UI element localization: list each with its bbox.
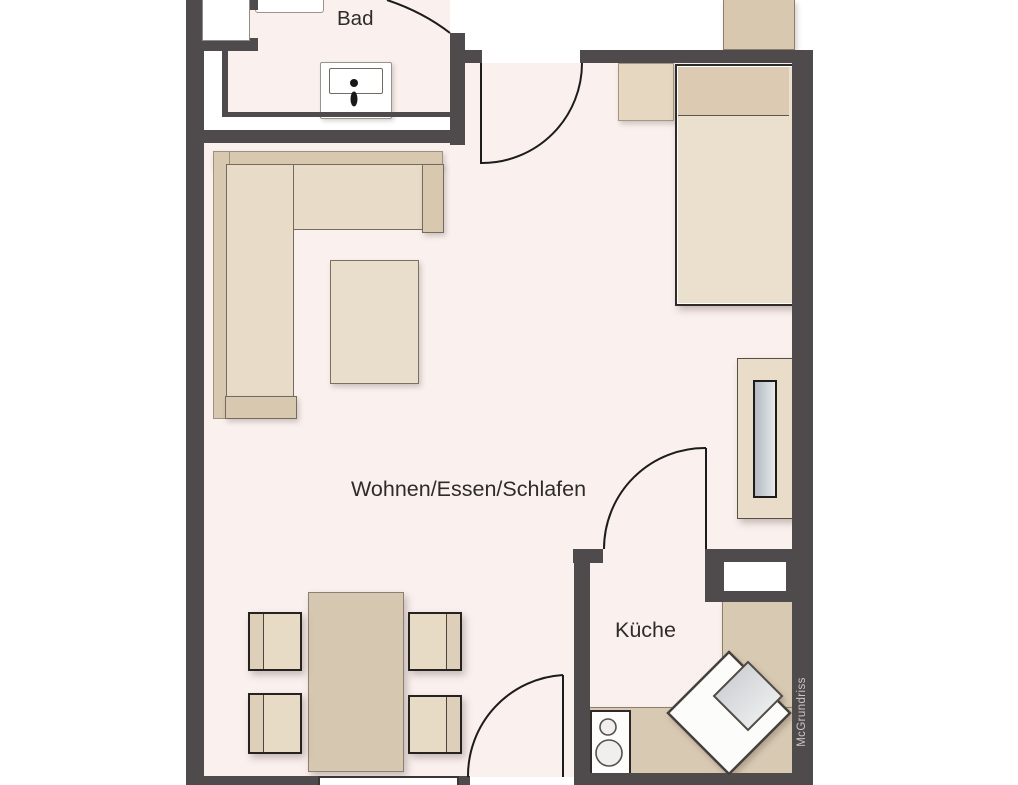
sofa-armrest-right [422,164,444,233]
bed [675,64,796,306]
stove [590,710,631,777]
toilet-cutoff [255,0,324,13]
wall-stub-entry [463,50,482,63]
wall-band-below-bath [186,130,463,143]
wardrobe [737,358,794,519]
bathroom-label: Bad [337,7,373,31]
shaft-channel-vertical [204,49,222,131]
wall-bottom-pier [459,776,470,785]
sofa-seat-left [226,164,294,399]
coffee-table [330,260,419,384]
bathroom-window-opening [202,0,250,41]
bed-pillow [678,67,789,116]
nightstand [618,63,674,121]
chair-backrest [446,614,460,669]
dining-chair [408,612,462,671]
chair-backrest [446,697,460,752]
wall-bottom-left [186,776,318,785]
wall-top [580,50,813,63]
wall-exterior-left [186,0,204,785]
bottom-window [318,776,459,785]
chair-backrest [250,695,264,752]
dining-table [308,592,404,772]
sofa-armrest-bottom [225,396,297,419]
dining-chair [408,695,462,754]
wall-bath-left-thin [222,49,228,117]
washbasin [320,62,392,119]
wall-kitchen-bottom [574,773,812,785]
chair-backrest [250,614,264,669]
wall-kitchen-left [574,549,590,777]
washbasin-bowl [329,68,383,94]
living-room-label: Wohnen/Essen/Schlafen [351,477,586,502]
hallway-cabinet [723,0,795,50]
watermark: McGrundriss [796,652,808,772]
kitchen-label: Küche [615,618,676,643]
dining-chair [248,693,302,754]
floor-plan: Bad Wohnen/Essen/Schlafen Küche McGrundr… [0,0,1018,785]
wall-bath-bottom-thin [222,112,452,117]
dining-chair [248,612,302,671]
kitchen-shaft-opening [724,562,786,591]
wardrobe-mirror [753,380,777,498]
